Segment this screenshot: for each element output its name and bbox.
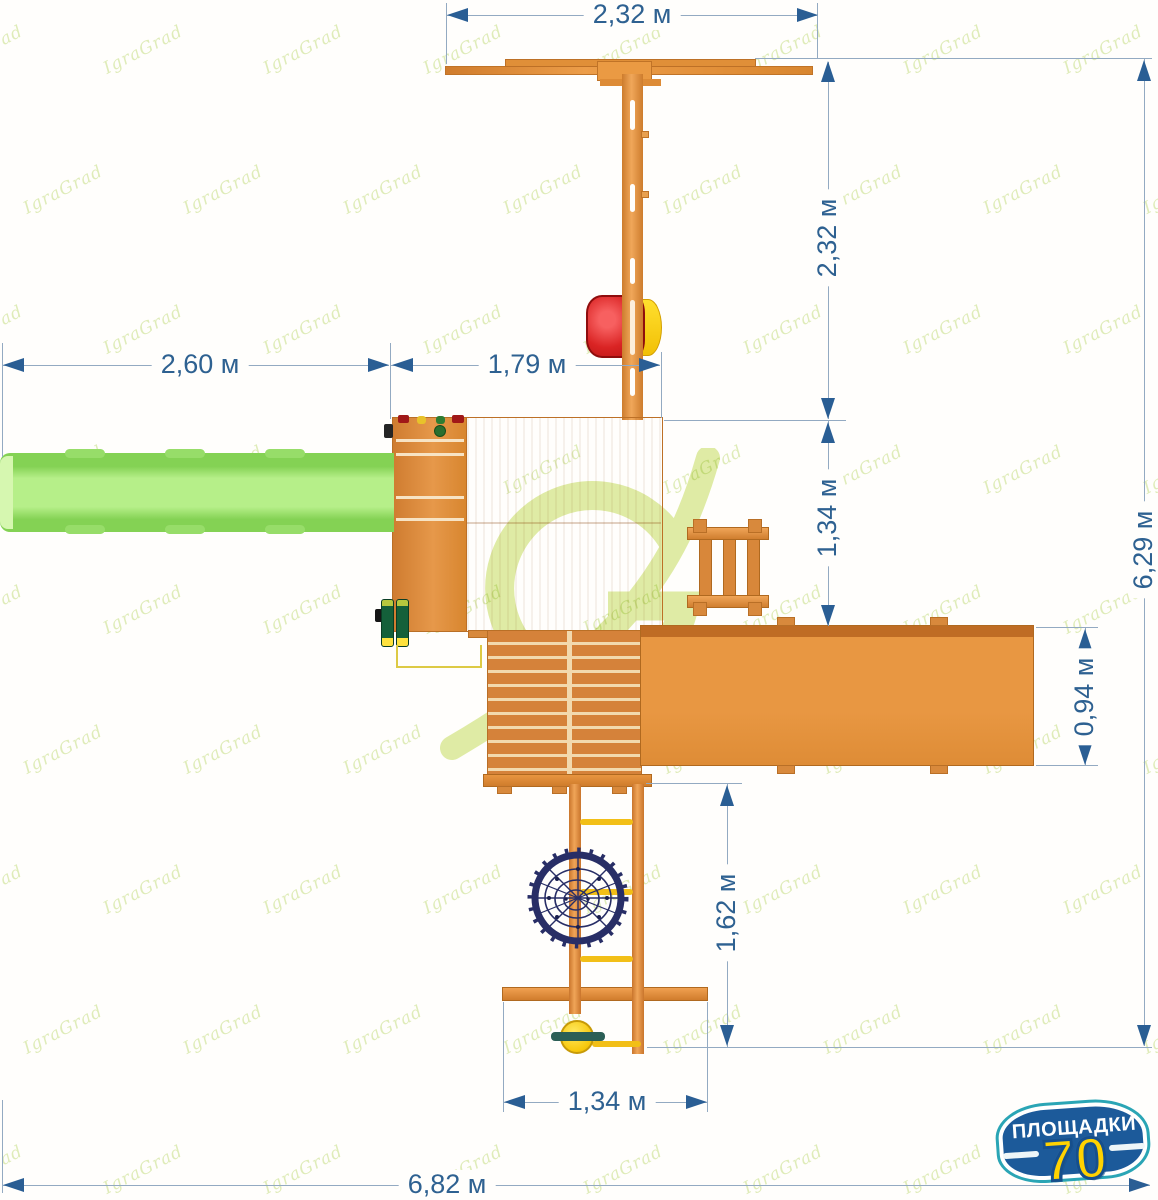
swing-post-slot (630, 300, 635, 355)
lower-deck-foot (552, 786, 567, 794)
lower-deck-foot (497, 786, 512, 794)
dim-label-bottom-width: 1,34 м (559, 1087, 656, 1117)
access-ladder-cap (748, 602, 762, 616)
badge-number: 70 (1033, 1123, 1117, 1195)
watermark-text: IgraGrad (820, 1001, 906, 1058)
access-ladder-cap (693, 602, 707, 616)
watermark-text: IgraGrad (1140, 161, 1158, 218)
swing-post-peg (641, 191, 649, 198)
dim-label-top-width: 2,32 м (584, 0, 681, 30)
watermark-text: IgraGrad (180, 161, 266, 218)
watermark-text: IgraGrad (100, 21, 186, 78)
watermark-text: IgraGrad (0, 581, 26, 638)
panel-accessory-green (436, 416, 445, 424)
lower-deck-center-gap (567, 631, 572, 775)
swing-post-slot (630, 368, 635, 396)
platform-roof (466, 417, 663, 632)
watermark-text: IgraGrad (0, 301, 26, 358)
slide-rail-bump (65, 449, 105, 458)
panel-accessory-red (398, 415, 409, 423)
watermark-text: IgraGrad (0, 21, 26, 78)
watermark-text: IgraGrad (260, 861, 346, 918)
watermark-text: IgraGrad (900, 861, 986, 918)
watermark-text: IgraGrad (1060, 21, 1146, 78)
platform-roof-seam (467, 522, 661, 524)
brand-badge: ПЛОЩАДКИ 70 (995, 1100, 1155, 1200)
bottom-beam (502, 987, 708, 1001)
swing-post-slot (630, 184, 635, 212)
slide-rail-bump (165, 449, 205, 458)
rope-ladder-rung (580, 956, 633, 962)
access-ladder-rung (723, 538, 736, 598)
watermark-text: IgraGrad (660, 161, 746, 218)
right-deck-tab (930, 617, 948, 626)
dim-label-platform-width: 1,79 м (479, 350, 576, 380)
watermark-text: IgraGrad (500, 161, 586, 218)
watermark-text: IgraGrad (100, 581, 186, 638)
lower-deck (487, 630, 642, 776)
watermark-text: IgraGrad (740, 861, 826, 918)
watermark-text: IgraGrad (1140, 441, 1158, 498)
watermark-text: IgraGrad (740, 301, 826, 358)
access-ladder-cap (748, 519, 762, 533)
watermark-text: IgraGrad (100, 861, 186, 918)
watermark-text: IgraGrad (1140, 721, 1158, 778)
watermark-text: IgraGrad (260, 301, 346, 358)
slide-rail-bump (265, 525, 305, 534)
slide-rail-bump (165, 525, 205, 534)
access-ladder-rung (747, 538, 760, 598)
access-ladder-cap (693, 519, 707, 533)
watermark-text: IgraGrad (580, 1141, 666, 1198)
rope-ladder-rung (580, 819, 633, 825)
watermark-text: IgraGrad (900, 301, 986, 358)
platform-side-clamp (384, 424, 393, 438)
dim-label-total-width: 6,82 м (399, 1170, 496, 1200)
platform-slat-gap (396, 439, 464, 442)
panel-accessory-yellow (417, 416, 426, 424)
watermark-text: IgraGrad (20, 721, 106, 778)
dim-label-mid-height: 1,34 м (813, 470, 843, 567)
platform-slat-gap (396, 518, 464, 521)
access-ladder-rung (699, 538, 712, 598)
lower-deck-foot (612, 786, 627, 794)
dim-label-total-height: 6,29 м (1129, 502, 1158, 599)
watermark-text: IgraGrad (340, 1001, 426, 1058)
rope-ladder-rail-right (632, 784, 644, 1054)
watermark-text: IgraGrad (260, 21, 346, 78)
watermark-text: IgraGrad (420, 861, 506, 918)
slide-end-cap (0, 456, 13, 529)
watermark-text: IgraGrad (100, 1141, 186, 1198)
watermark-text: IgraGrad (20, 1001, 106, 1058)
watermark-text: IgraGrad (180, 721, 266, 778)
drawing-canvas: IgraGradIgraGradIgraGradIgraGradIgraGrad… (0, 0, 1158, 1200)
swing-post-slot (630, 100, 635, 130)
slide (0, 453, 394, 532)
watermark-text: IgraGrad (0, 861, 26, 918)
watermark-text: IgraGrad (260, 1141, 346, 1198)
telescope-barrel (396, 599, 409, 647)
watermark-text: IgraGrad (1060, 301, 1146, 358)
watermark-text: IgraGrad (980, 161, 1066, 218)
watermark-text: IgraGrad (900, 21, 986, 78)
telescope-barrel (381, 599, 394, 647)
watermark-text: IgraGrad (340, 161, 426, 218)
watermark-text: IgraGrad (260, 581, 346, 638)
climbing-net (524, 844, 632, 952)
watermark-text: IgraGrad (20, 161, 106, 218)
frame-outline (396, 645, 398, 668)
dim-label-right-deck-height: 0,94 м (1070, 649, 1100, 746)
watermark-text: IgraGrad (1060, 861, 1146, 918)
steering-wheel-bar (551, 1032, 605, 1041)
watermark-text: IgraGrad (180, 1001, 266, 1058)
frame-outline (396, 666, 482, 668)
watermark-text: IgraGrad (980, 1001, 1066, 1058)
slide-rail-bump (65, 525, 105, 534)
platform-slat-gap (396, 496, 464, 499)
watermark-text: IgraGrad (980, 441, 1066, 498)
right-deck-tab (777, 765, 795, 774)
watermark-text: IgraGrad (340, 721, 426, 778)
swing-post-slot (630, 258, 635, 284)
swing-post-peg (641, 131, 649, 138)
panel-knob-green (434, 425, 446, 437)
slide-rail-bump (265, 449, 305, 458)
right-deck-tab (777, 617, 795, 626)
dim-label-ladder-height: 1,62 м (712, 865, 742, 962)
right-deck-tab (930, 765, 948, 774)
dim-label-upper-height: 2,32 м (813, 190, 843, 287)
right-deck (640, 625, 1034, 766)
panel-accessory-red (452, 415, 464, 423)
platform-slat-gap (396, 453, 464, 456)
dim-label-left-width: 2,60 м (152, 350, 249, 380)
rope-ladder-rung (592, 1041, 641, 1047)
watermark-text: IgraGrad (740, 1141, 826, 1198)
frame-outline (480, 645, 482, 668)
watermark-text: IgraGrad (900, 1141, 986, 1198)
